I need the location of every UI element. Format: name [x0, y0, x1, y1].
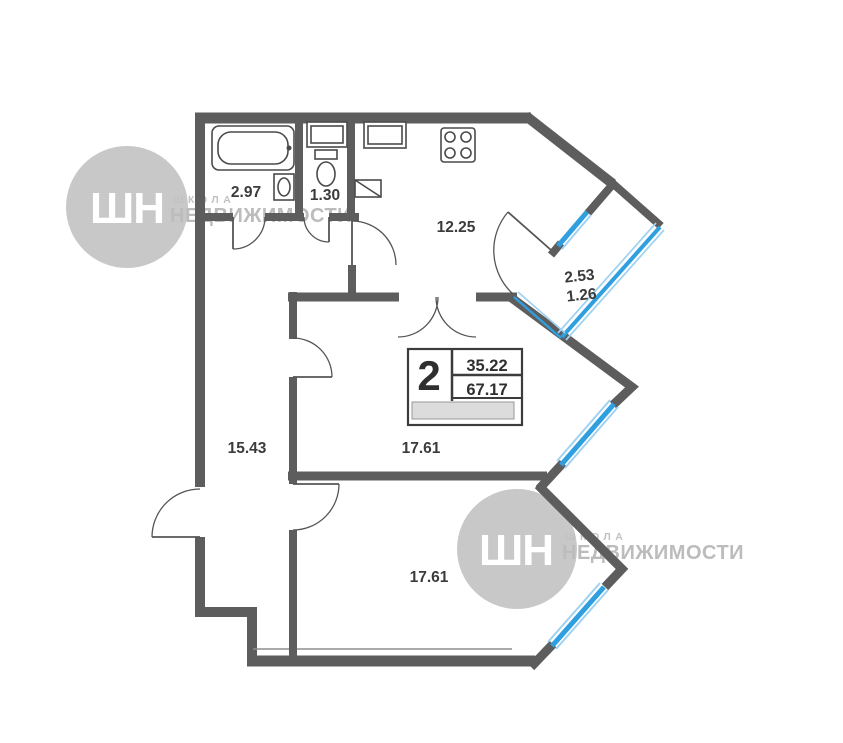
sink-icon	[274, 174, 294, 200]
label-balcony-area: 2.53	[564, 266, 596, 286]
toilet-icon	[315, 150, 337, 186]
label-hallway-area: 15.43	[228, 440, 267, 457]
watermark-top-left: ШН ШКОЛА НЕДВИЖИМОСТИ	[66, 146, 352, 268]
floor-plan-svg: ШН ШКОЛА НЕДВИЖИМОСТИ ШН ШКОЛА НЕДВИЖИМО…	[0, 0, 843, 743]
living-area: 35.22	[466, 357, 507, 375]
info-box: 2 35.22 67.17	[408, 349, 522, 425]
wall-balcony-partition	[588, 184, 613, 213]
window-middle-room	[557, 400, 618, 468]
label-living-room-1-area: 17.61	[402, 440, 441, 457]
wall-diagonal-top	[526, 116, 613, 184]
label-toilet-area: 1.30	[310, 187, 340, 204]
watermark-brand-label: НЕДВИЖИМОСТИ	[562, 542, 744, 564]
balcony-door	[494, 212, 551, 294]
watermark-logo: ШН	[90, 184, 164, 233]
washer-icon	[307, 122, 347, 147]
bathtub-icon	[212, 126, 294, 170]
kitchen-corridor-door	[352, 221, 396, 265]
kitchen-double-door	[398, 297, 476, 337]
label-kitchen-area: 12.25	[437, 219, 476, 236]
vent-shaft-icon	[355, 180, 381, 197]
stove-icon	[441, 128, 475, 162]
appliance-icon	[364, 122, 406, 148]
rooms-count: 2	[417, 352, 440, 399]
middle-room-door	[293, 338, 332, 377]
floor-plan-page: ШН ШКОЛА НЕДВИЖИМОСТИ ШН ШКОЛА НЕДВИЖИМО…	[0, 0, 843, 743]
label-bathroom-area: 2.97	[231, 184, 261, 201]
label-balcony-area-reduced: 1.26	[566, 285, 598, 305]
label-living-room-2-area: 17.61	[410, 569, 449, 586]
bottom-room-door	[293, 484, 339, 530]
wall-tooth2	[509, 296, 632, 405]
wall-balcony-top	[610, 181, 661, 226]
info-box-band	[412, 402, 514, 419]
total-area: 67.17	[466, 381, 507, 399]
watermark-logo: ШН	[479, 526, 553, 575]
entrance-door	[152, 489, 200, 537]
balcony-door-window	[558, 212, 591, 249]
